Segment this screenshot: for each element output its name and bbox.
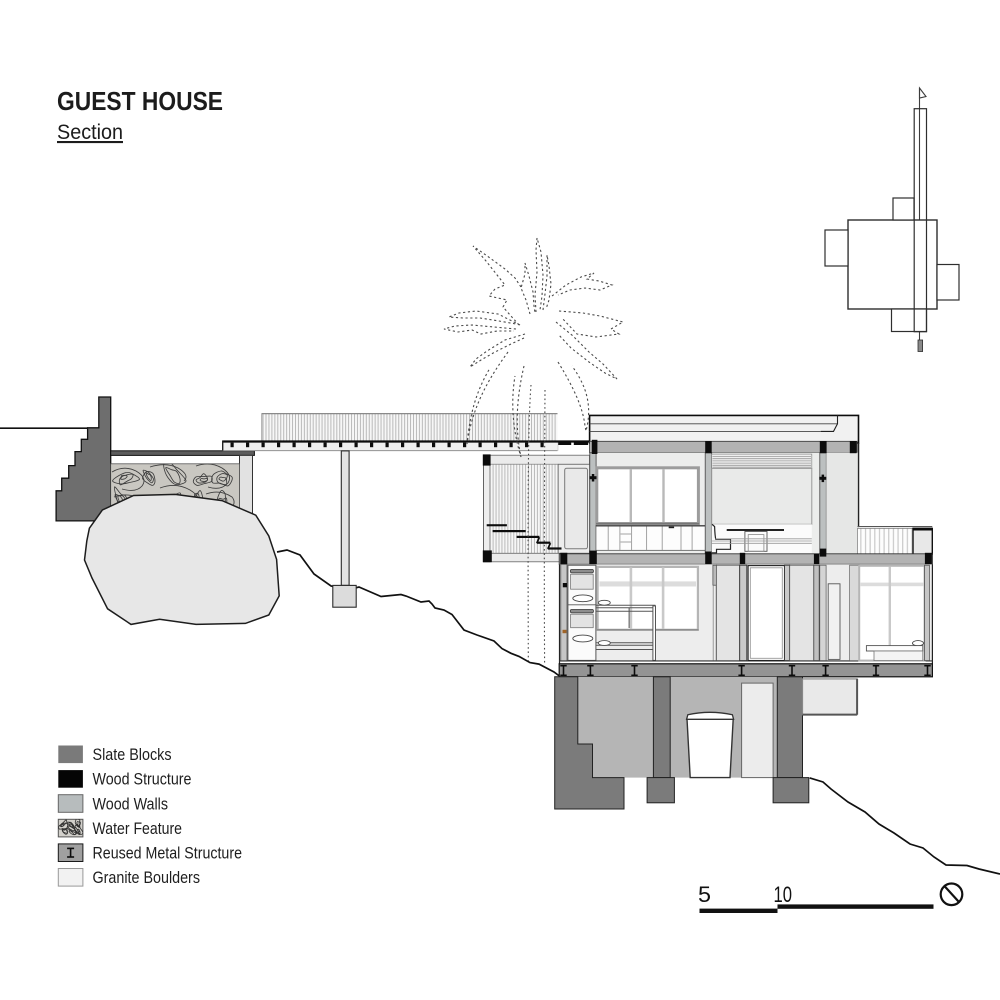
svg-text:GUEST HOUSE: GUEST HOUSE [57, 88, 223, 116]
svg-text:Slate Blocks: Slate Blocks [93, 745, 172, 764]
svg-text:Reused Metal Structure: Reused Metal Structure [93, 844, 243, 863]
svg-text:Water Feature: Water Feature [93, 819, 183, 838]
svg-text:10: 10 [774, 882, 793, 907]
svg-text:5: 5 [698, 882, 711, 907]
svg-text:Section: Section [57, 121, 123, 144]
svg-text:Wood Structure: Wood Structure [93, 770, 192, 789]
svg-text:Granite Boulders: Granite Boulders [93, 868, 201, 887]
svg-text:Wood Walls: Wood Walls [93, 794, 169, 813]
